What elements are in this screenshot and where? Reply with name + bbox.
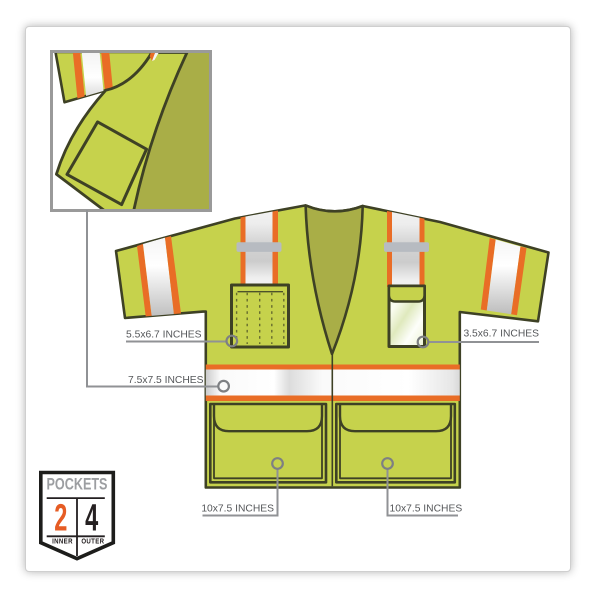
svg-text:3.5x6.7 INCHES: 3.5x6.7 INCHES xyxy=(463,329,539,340)
svg-text:INNER: INNER xyxy=(52,538,73,546)
svg-text:5.5x6.7 INCHES: 5.5x6.7 INCHES xyxy=(126,330,202,341)
svg-text:POCKETS: POCKETS xyxy=(47,476,108,494)
svg-text:10x7.5 INCHES: 10x7.5 INCHES xyxy=(390,504,463,515)
svg-text:10x7.5 INCHES: 10x7.5 INCHES xyxy=(201,504,274,515)
svg-text:2: 2 xyxy=(54,496,67,539)
svg-text:4: 4 xyxy=(85,496,98,539)
svg-text:OUTER: OUTER xyxy=(81,538,104,546)
svg-text:7.5x7.5 INCHES: 7.5x7.5 INCHES xyxy=(128,375,204,386)
